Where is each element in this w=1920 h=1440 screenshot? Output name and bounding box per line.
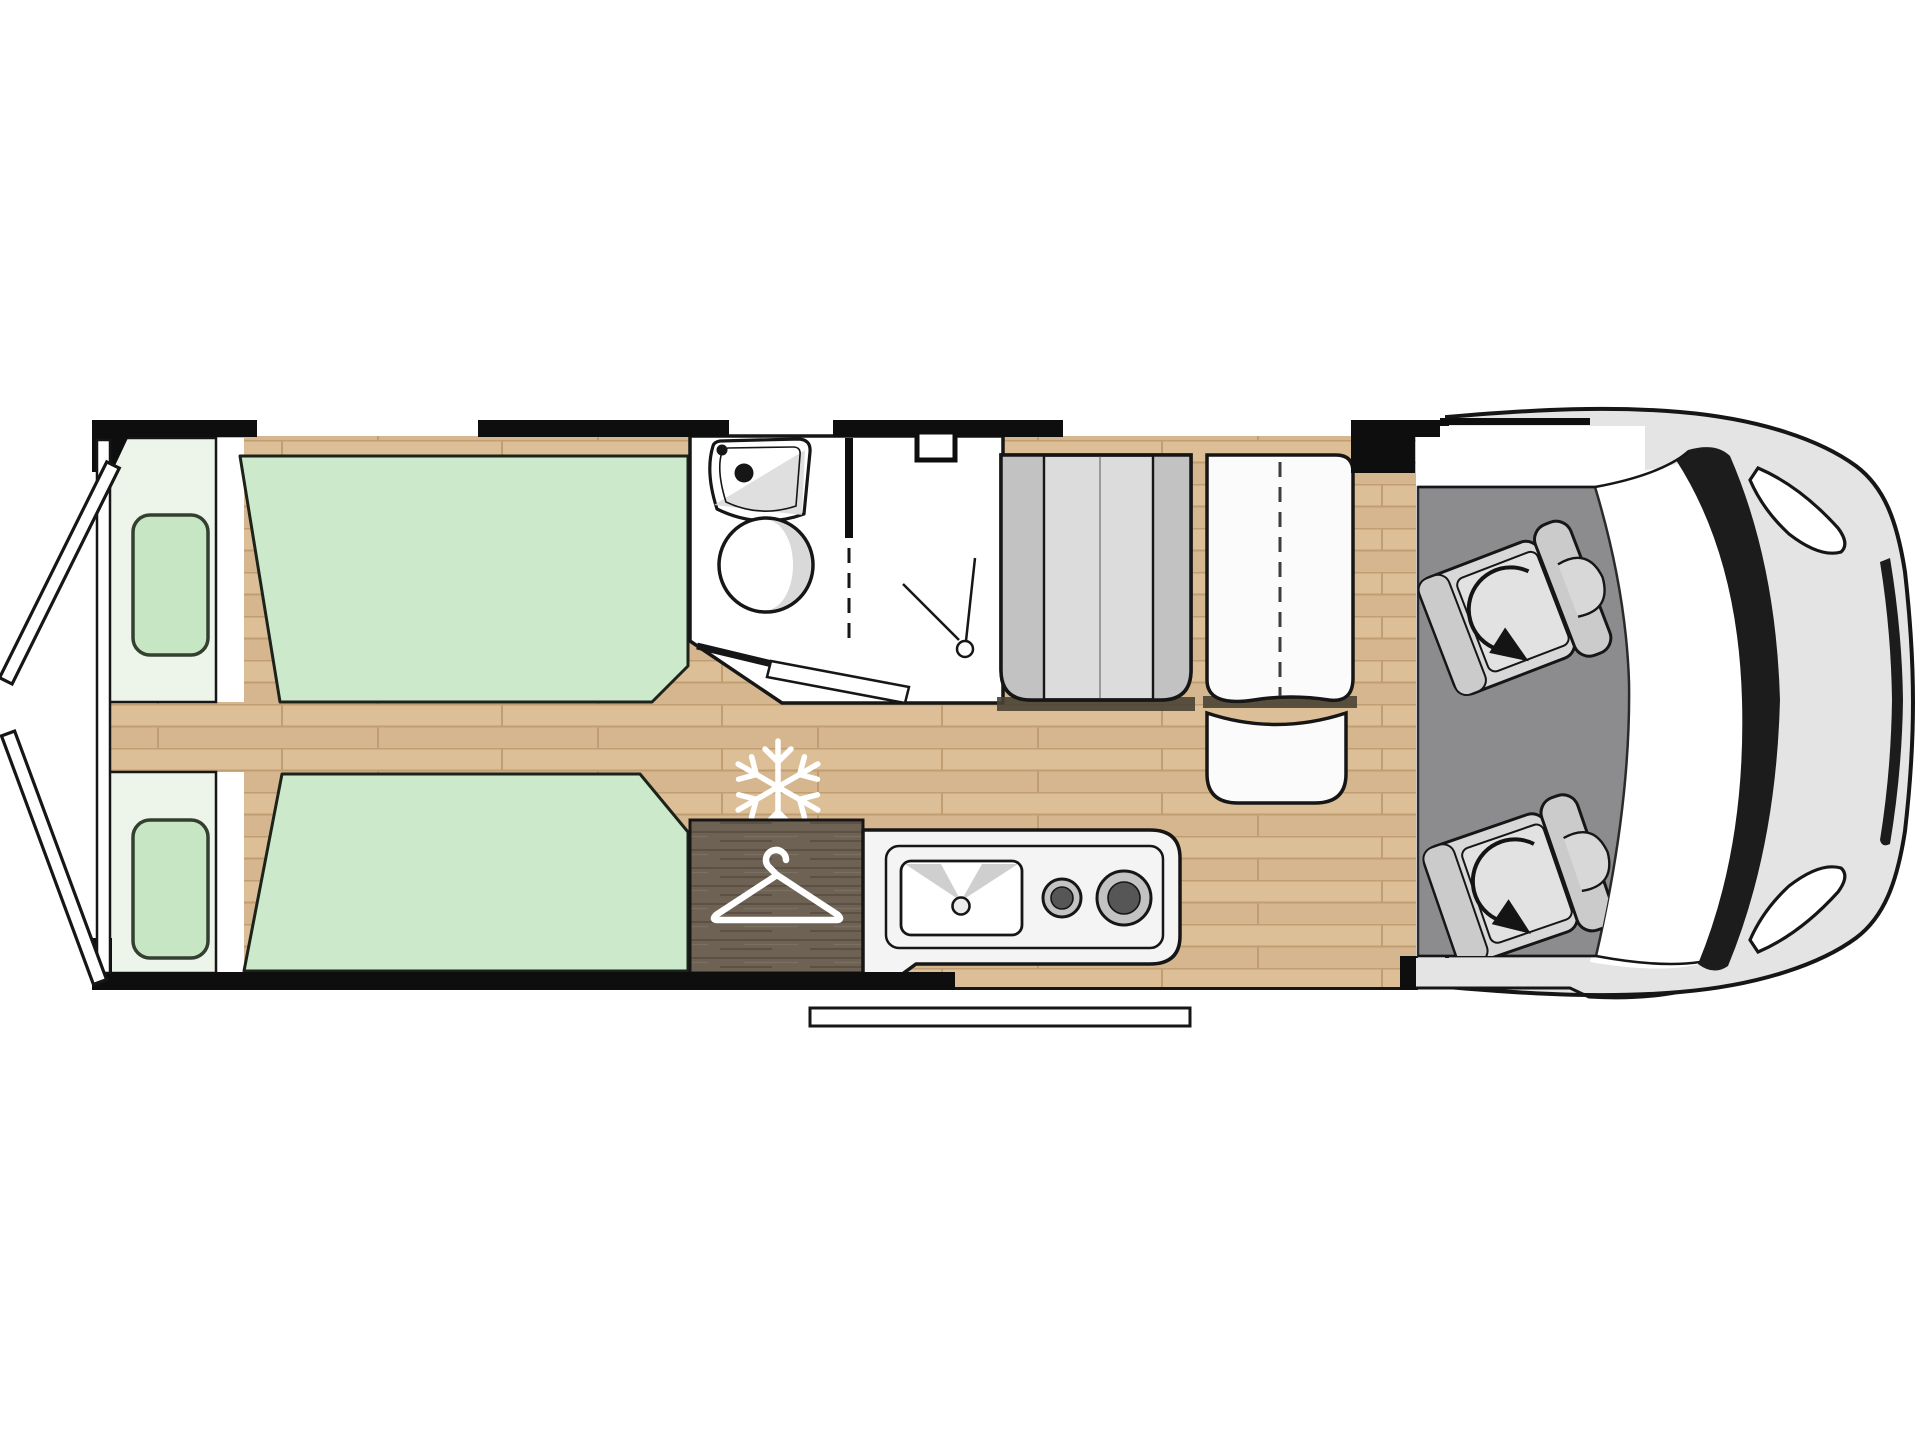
- wall-top-post: [1351, 420, 1415, 473]
- bed-gap-top: [214, 438, 244, 702]
- floorplan-canvas: [0, 0, 1920, 1440]
- wall-top-2: [478, 420, 729, 437]
- bed-mattress-top: [240, 456, 688, 702]
- kitchen-sink-icon: [901, 861, 1022, 935]
- washroom-partition: [845, 438, 853, 538]
- rear-door-bottom: [1, 731, 106, 984]
- sink-icon: [710, 439, 810, 521]
- wall-bottom: [92, 972, 955, 990]
- pillow-bottom: [133, 820, 208, 958]
- motorhome-floorplan-diagram: [0, 0, 1920, 1440]
- side-seat: [1207, 713, 1346, 803]
- washroom: [690, 436, 1003, 703]
- bed-mattress-bottom: [244, 774, 688, 971]
- rear-sill: [97, 440, 110, 973]
- pillow-top: [133, 515, 208, 655]
- roof-vent: [917, 432, 955, 460]
- bed-gap-bottom: [214, 772, 244, 972]
- wardrobe: [690, 820, 863, 973]
- kitchen-unit: [863, 830, 1180, 986]
- toilet-icon: [719, 518, 813, 612]
- entry-step: [810, 1008, 1190, 1026]
- wall-cab-stub: [1400, 956, 1418, 990]
- vehicle-front: [1412, 409, 1913, 998]
